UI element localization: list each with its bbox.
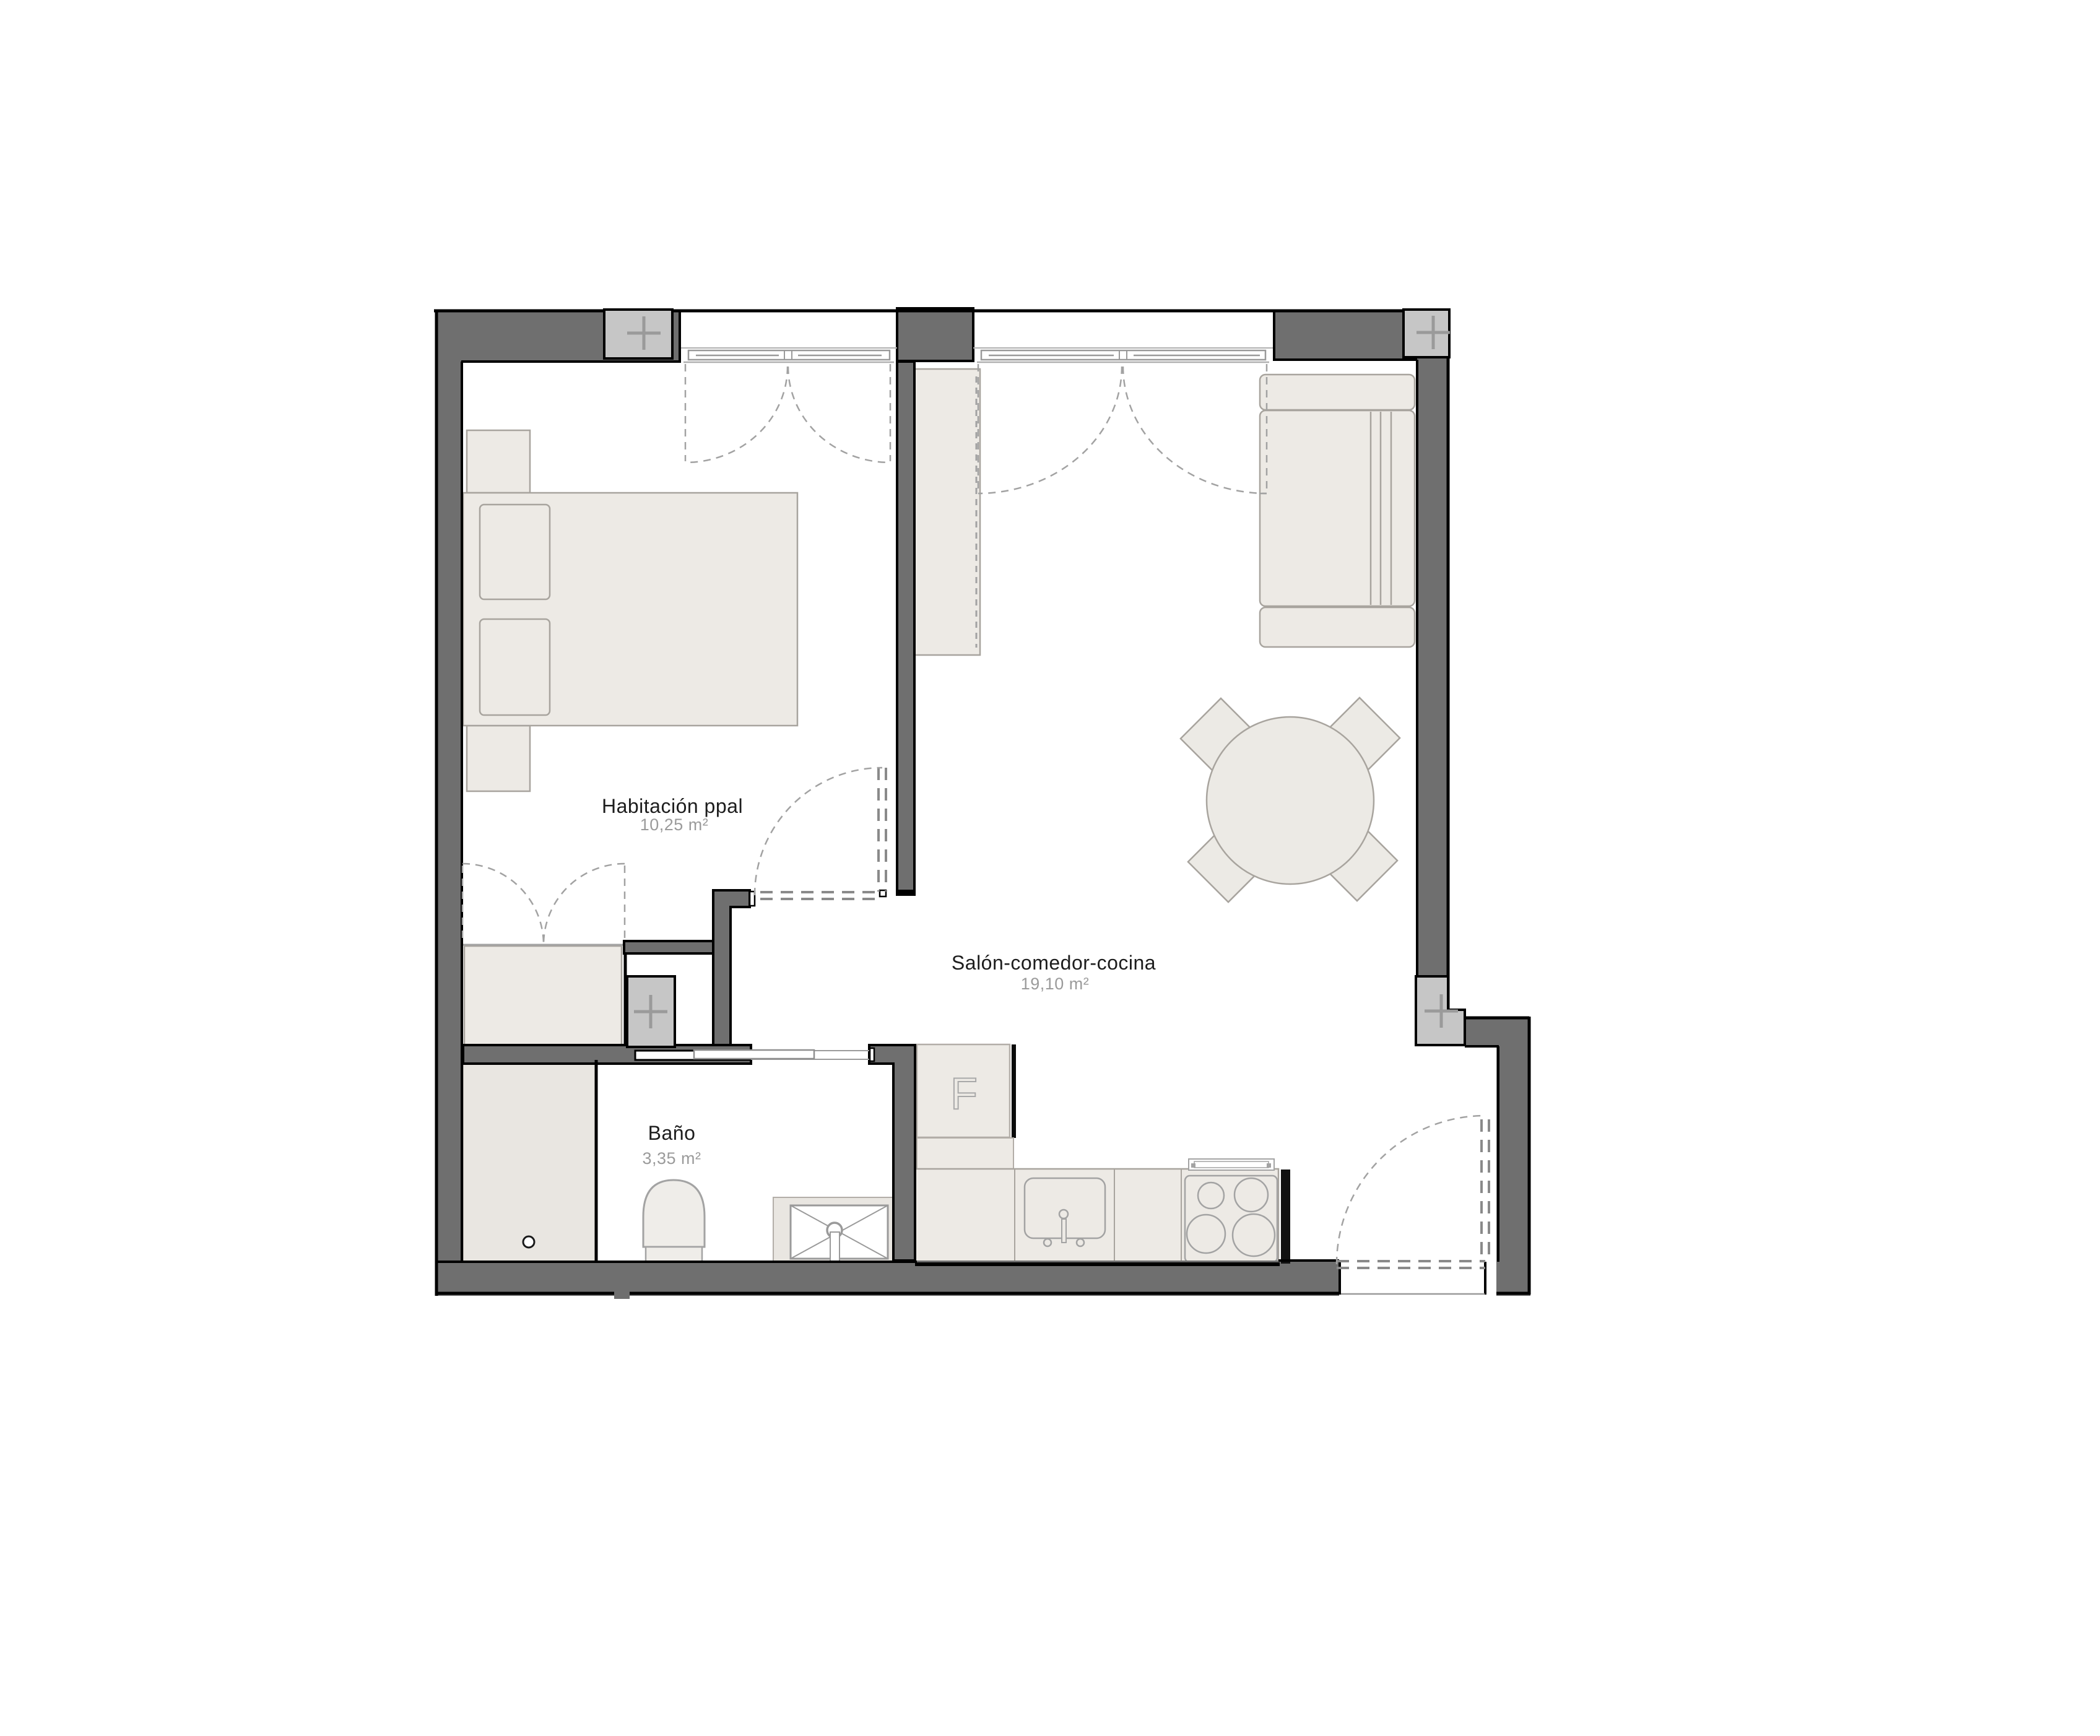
- svg-text:Salón-comedor-cocina: Salón-comedor-cocina: [952, 952, 1156, 974]
- svg-text:F: F: [950, 1069, 978, 1119]
- svg-text:Habitación ppal: Habitación ppal: [602, 795, 743, 817]
- svg-text:10,25 m²: 10,25 m²: [640, 815, 709, 834]
- svg-text:Baño: Baño: [648, 1122, 696, 1144]
- svg-text:19,10 m²: 19,10 m²: [1021, 974, 1090, 993]
- svg-text:3,35 m²: 3,35 m²: [642, 1149, 701, 1168]
